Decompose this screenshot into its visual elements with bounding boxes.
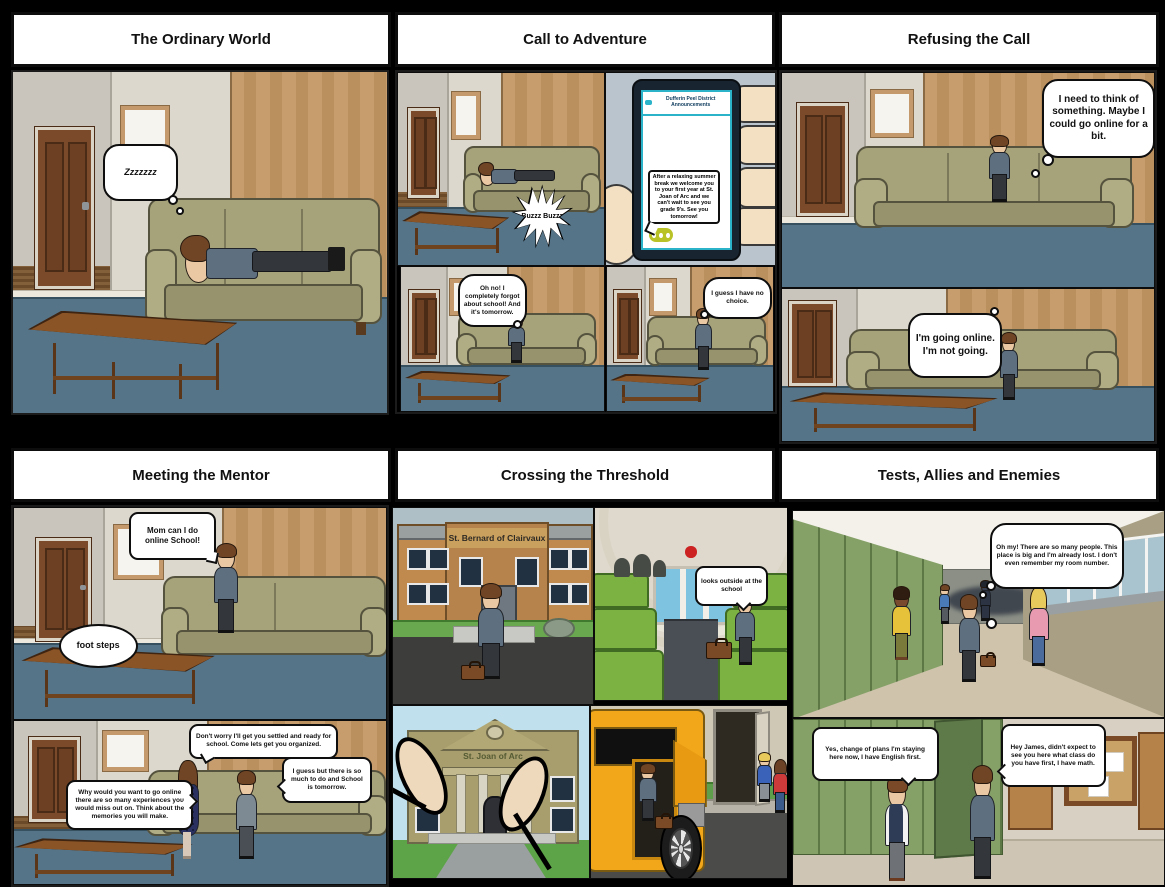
window xyxy=(550,807,574,833)
window xyxy=(428,548,449,570)
steps xyxy=(428,833,555,844)
window xyxy=(570,583,589,605)
window xyxy=(549,548,570,570)
coffee-table xyxy=(610,374,710,406)
table-leg xyxy=(498,383,501,402)
door xyxy=(35,127,93,290)
door xyxy=(614,290,642,362)
speech-bubble-look: looks outside at the school xyxy=(695,566,768,607)
speech-tail xyxy=(206,551,219,564)
table-shelf xyxy=(35,870,171,874)
bus-light xyxy=(685,546,697,558)
panel-title-call-to-adventure: Call to Adventure xyxy=(395,12,775,67)
title-text: The Ordinary World xyxy=(131,31,271,48)
character-sleeping-boy xyxy=(480,165,562,184)
scene-buzzing-phone: Buzzz Buzzz xyxy=(397,72,605,266)
thought-dot xyxy=(986,581,996,591)
speech-bubble-ask: Mom can I do online School! xyxy=(129,512,215,560)
coffee-table xyxy=(14,838,193,880)
table-leg xyxy=(112,362,115,399)
table-shelf xyxy=(418,396,498,400)
couch-seam xyxy=(947,153,949,203)
thought-dot xyxy=(168,195,178,205)
speech-bubble-guess: I guess but there is so much to do and S… xyxy=(282,757,372,803)
bubble-text: Mom can I do online School! xyxy=(135,526,209,546)
bubble-text: I guess but there is so much to do and S… xyxy=(288,768,366,792)
table-leg xyxy=(45,670,48,707)
table-top xyxy=(28,311,237,366)
door xyxy=(789,301,836,386)
school-doorway xyxy=(713,709,762,804)
scene-thinking: I need to think of something. Maybe I co… xyxy=(781,72,1155,288)
passenger-silhouette xyxy=(653,560,666,577)
scene-lockers-talk: Yes, change of plans I'm staying here no… xyxy=(792,718,1165,887)
bubble-text: I'm going online. I'm not going. xyxy=(914,333,996,358)
character-girl-yellow-jacket xyxy=(889,589,911,659)
table-shelf xyxy=(622,397,698,401)
window xyxy=(428,583,449,605)
speech-bubble-reply: Don't worry I'll get you settled and rea… xyxy=(189,724,339,758)
table-top xyxy=(14,838,193,864)
bubble-text: Don't worry I'll get you settled and rea… xyxy=(195,733,333,749)
panel-meeting-the-mentor: Mom can I do online School! foot steps xyxy=(11,505,389,887)
character-girl-blonde-pink xyxy=(1027,589,1049,665)
panel-title-refusing-the-call: Refusing the Call xyxy=(779,12,1159,67)
thought-bubble-zzz: Zzzzzzz xyxy=(103,144,179,202)
couch-seat xyxy=(873,201,1115,227)
picture-frame xyxy=(650,279,676,316)
bubble-text: foot steps xyxy=(77,640,120,651)
character-boy-in-doorway xyxy=(637,765,657,819)
hand-finger xyxy=(735,167,777,207)
couch-seam xyxy=(274,583,276,633)
bus-seat xyxy=(594,608,657,650)
picture-frame xyxy=(871,90,912,137)
passenger-silhouette xyxy=(633,554,650,577)
table-leg xyxy=(496,228,499,253)
sound-bubble-footsteps: foot steps xyxy=(59,624,138,668)
window xyxy=(407,583,428,605)
school-sign: St. Bernard of Clairvaux xyxy=(447,528,547,548)
classroom-door xyxy=(1138,732,1165,830)
couch-seat xyxy=(467,347,586,365)
table-top xyxy=(402,211,509,240)
character-james xyxy=(882,779,910,881)
table-top xyxy=(405,371,511,392)
hand-finger xyxy=(735,125,777,165)
panel-ordinary-world: Zzzzzzz xyxy=(11,70,389,415)
panel-tests-allies-enemies: Oh my! There are so many people. This pl… xyxy=(790,508,1165,887)
scene-bus-arrival xyxy=(590,705,788,879)
school-bus xyxy=(590,709,705,871)
couch-seam xyxy=(1038,153,1040,203)
smartphone: Dufferin Peel District Announcements Aft… xyxy=(632,79,741,262)
bubble-text: Zzzzzzz xyxy=(124,167,157,178)
speech-bubble-friend: Hey James, didn't expect to see you here… xyxy=(1001,724,1106,787)
bubble-text: Oh no! I completely forgot about school!… xyxy=(464,285,521,318)
burst-text: Buzzz Buzzz xyxy=(521,213,563,221)
table-leg xyxy=(698,385,701,402)
scene-forgot-school: Oh no! I completely forgot about school!… xyxy=(400,266,605,412)
dropped-paper-dot xyxy=(986,618,997,629)
table-top xyxy=(789,392,997,418)
phone-header: Dufferin Peel District Announcements xyxy=(643,92,730,116)
briefcase xyxy=(980,655,996,667)
table-shelf xyxy=(415,245,496,249)
thought-bubble-think: I need to think of something. Maybe I co… xyxy=(1042,79,1154,157)
thought-dot xyxy=(513,320,522,329)
picture-frame xyxy=(452,92,481,138)
bus-hood xyxy=(673,740,707,807)
character-boy xyxy=(233,773,257,858)
speech-bubble-why: Why would you want to go online there ar… xyxy=(66,780,193,831)
couch-leg xyxy=(356,322,365,334)
character-boy-standing xyxy=(693,310,711,368)
scene-bus-interior: looks outside at the school xyxy=(594,507,788,701)
table-leg xyxy=(53,343,56,394)
window xyxy=(550,776,574,802)
briefcase xyxy=(655,816,673,829)
chat-bubble-icon xyxy=(645,100,652,105)
window xyxy=(515,557,539,587)
title-text: Call to Adventure xyxy=(523,31,647,48)
window xyxy=(459,557,483,587)
title-text: Tests, Allies and Enemies xyxy=(878,467,1061,484)
character-boy-sitting xyxy=(987,137,1011,199)
table-shelf xyxy=(814,424,972,428)
window xyxy=(570,548,589,570)
scene-st-joan: St. Joan of Arc xyxy=(392,705,590,879)
table-leg xyxy=(814,408,817,433)
column xyxy=(456,774,466,833)
bubble-text: Oh my! There are so many people. This pl… xyxy=(996,544,1118,568)
bubble-text: Why would you want to go online there ar… xyxy=(72,789,187,822)
coffee-table xyxy=(405,371,511,406)
scene-st-bernard: St. Bernard of Clairvaux xyxy=(392,507,594,705)
door xyxy=(797,103,848,216)
panel-call-to-adventure: Buzzz Buzzz Dufferin Peel District Annou… xyxy=(395,70,777,414)
table-leg xyxy=(192,670,195,704)
phone-message-bubble: After a relaxing summer break we welcome… xyxy=(648,170,720,224)
character-boy-blue xyxy=(938,585,950,621)
window xyxy=(407,548,428,570)
bus-aisle xyxy=(664,619,718,701)
bus-seat xyxy=(594,650,664,701)
table-shelf xyxy=(53,376,216,380)
door xyxy=(409,290,439,362)
coffee-table xyxy=(789,392,997,435)
panel-title-crossing-the-threshold: Crossing the Threshold xyxy=(395,448,775,502)
door xyxy=(408,108,439,198)
table-top xyxy=(610,374,710,394)
coffee-table xyxy=(402,211,509,257)
scene-asking-mom: Mom can I do online School! foot steps xyxy=(13,507,387,720)
table-leg xyxy=(35,854,38,879)
picture-frame xyxy=(103,731,148,772)
panel-title-ordinary-world: The Ordinary World xyxy=(11,12,391,67)
title-text: Refusing the Call xyxy=(908,31,1031,48)
panel-title-tests-allies-enemies: Tests, Allies and Enemies xyxy=(779,448,1159,502)
storyboard-page: { "storyboard": { "panels": [ { "title":… xyxy=(0,0,1165,883)
table-leg xyxy=(179,364,182,399)
scene-mom-talk: Don't worry I'll get you settled and rea… xyxy=(13,720,387,885)
bubble-text: Hey James, didn't expect to see you here… xyxy=(1007,744,1100,768)
table-shelf xyxy=(45,694,192,698)
bubble-text: looks outside at the school xyxy=(701,578,762,594)
thought-dot xyxy=(176,207,184,215)
table-leg xyxy=(973,408,976,431)
character-sleeping-boy xyxy=(185,241,350,282)
door-knob xyxy=(82,202,88,210)
table-leg xyxy=(415,228,418,255)
title-text: Meeting the Mentor xyxy=(132,467,270,484)
character-friend xyxy=(967,769,995,879)
bus-seat xyxy=(594,573,649,608)
character-girl-red xyxy=(771,761,787,811)
scene-hallway: Oh my! There are so many people. This pl… xyxy=(792,510,1165,718)
phone-header-text: Dufferin Peel District Announcements xyxy=(654,97,728,109)
thought-dot xyxy=(979,591,987,599)
bubble-text: I guess I have no choice. xyxy=(709,290,765,306)
phone-message-text: After a relaxing summer break we welcome… xyxy=(653,174,716,220)
thought-bubble-going: I'm going online. I'm not going. xyxy=(908,313,1002,378)
bubble-text: I need to think of something. Maybe I co… xyxy=(1048,94,1148,144)
passenger-silhouette xyxy=(614,558,629,577)
panel-crossing-the-threshold: St. Bernard of Clairvaux xyxy=(390,505,789,881)
title-text: Crossing the Threshold xyxy=(501,467,669,484)
window xyxy=(549,583,570,605)
speech-bubble-james: Yes, change of plans I'm staying here no… xyxy=(812,727,939,780)
panel-refusing-the-call: I need to think of something. Maybe I co… xyxy=(779,70,1157,444)
scene-phone-message: Dufferin Peel District Announcements Aft… xyxy=(605,72,777,266)
panel-title-meeting-the-mentor: Meeting the Mentor xyxy=(11,448,391,502)
briefcase xyxy=(706,642,732,659)
coffee-table xyxy=(28,311,237,400)
character-boy-main-back xyxy=(956,598,980,682)
thought-bubble-choice: I guess I have no choice. xyxy=(703,277,771,319)
phone-screen: Dufferin Peel District Announcements Aft… xyxy=(641,90,732,251)
table-leg xyxy=(216,343,219,391)
school-sign-text: St. Bernard of Clairvaux xyxy=(449,533,546,543)
character-blonde-kid xyxy=(756,754,772,800)
scene-decision: I'm going online. I'm not going. xyxy=(781,288,1155,442)
bubble-text: Yes, change of plans I'm staying here no… xyxy=(818,746,933,762)
thought-bubble-lost: Oh my! There are so many people. This pl… xyxy=(990,523,1124,589)
school-sign-text: St. Joan of Arc xyxy=(463,751,523,761)
briefcase xyxy=(461,665,485,680)
scene-no-choice: I guess I have no choice. xyxy=(606,266,774,412)
